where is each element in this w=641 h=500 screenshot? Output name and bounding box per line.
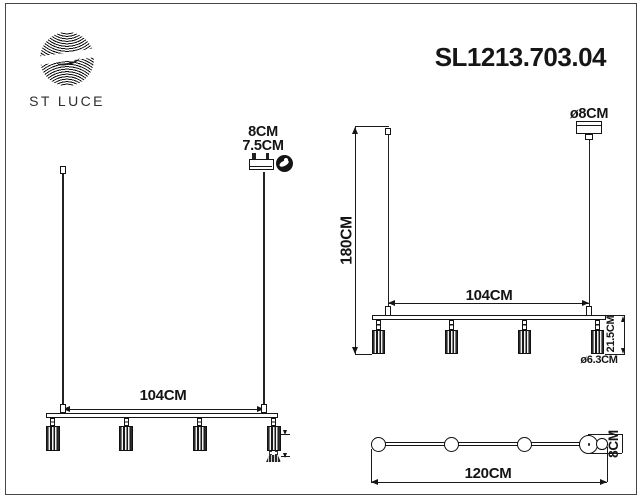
side-cord-gripper-left [385,128,391,135]
dimension-arrow [352,127,358,134]
sheet-border [5,3,637,495]
lamp-shade [445,330,458,354]
lamp-shade [193,426,207,452]
side-canopy-diameter-label: ø8CM [563,107,615,122]
dimension-sheet: ST LUCE SL1213.703.04 8CM 7.5CM 104CM 18… [0,0,641,500]
top-lamp-circle [444,437,459,452]
front-cord-gripper-left [60,166,66,174]
lamp-shade [267,426,281,452]
dimension-arrow [582,300,589,306]
top-canopy-center-dot [588,443,591,446]
top-lamp-circle [517,437,532,452]
direction-arrow-bar [281,456,290,457]
side-canopy-lip-line [577,125,601,126]
lamp-stem [449,320,454,330]
lamp-shade [591,330,604,354]
side-canopy-nub [585,134,593,141]
top-canopy-diameter-label: 8CM [607,404,623,484]
front-bar [46,413,278,418]
top-length-ext-right [607,447,608,482]
side-drop-label: 180CM [339,190,356,290]
top-bar [373,442,607,447]
side-drop-ext-bottom [355,354,372,355]
side-bar-length-label: 104CM [439,288,539,303]
bulb-socket [269,451,278,455]
lamp-stem [376,320,381,330]
lamp-shade [46,426,60,452]
front-bar-dimension-line [63,409,264,410]
lamp-shade [119,426,133,452]
brand-name: ST LUCE [24,93,110,109]
dimension-arrow [600,479,607,485]
side-suspension-cord-left [388,128,390,307]
side-canopy-body [576,121,602,134]
dimension-arrow [388,300,395,306]
front-bar-length-label: 104CM [113,388,213,403]
lamp-stem [522,320,527,330]
top-length-label: 120CM [438,466,538,481]
model-number: SL1213.703.04 [346,42,606,73]
top-length-ext-left [371,449,372,482]
top-lamp-circle [371,437,386,452]
side-bar [372,315,606,320]
front-suspension-cord-right [263,172,265,404]
front-canopy-depth-label: 7.5CM [237,139,289,154]
dimension-arrow [352,347,358,354]
side-drop-ext-top [355,126,389,127]
dimension-arrow [371,479,378,485]
side-suspension-cord-right [589,140,591,307]
lamp-shade [518,330,531,354]
direction-arrow-bar [281,434,290,435]
hand-adjust-icon [276,155,293,172]
side-lamp-diameter-label: ø6.3CM [569,355,629,366]
lamp-shade [372,330,385,354]
front-suspension-cord-left [62,173,64,404]
logo-sphere-icon [40,32,94,86]
front-canopy-detail-line [250,166,272,167]
front-canopy-body [249,159,274,171]
lamp-stem [595,320,600,330]
side-bar-dimension-line [388,303,589,304]
